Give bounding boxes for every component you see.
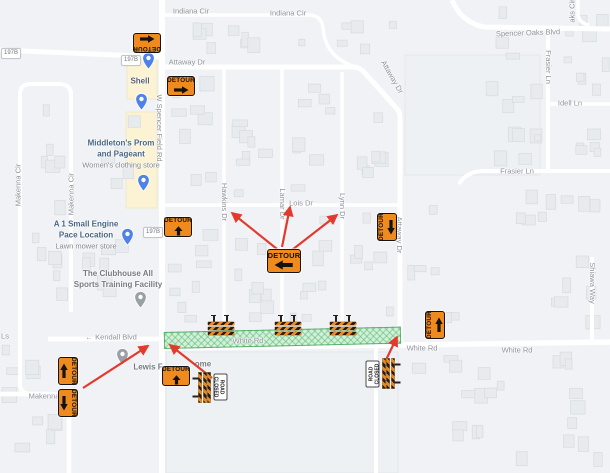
barricade-rail bbox=[330, 322, 356, 326]
barricade-rail bbox=[208, 372, 211, 402]
detour-sign-text: DETOUR bbox=[427, 311, 433, 339]
detour-sign[interactable]: DETOUR bbox=[377, 213, 397, 241]
detour-sign-text: DETOUR bbox=[162, 367, 190, 373]
detour-sign-text: DETOUR bbox=[69, 357, 75, 385]
detour-sign[interactable]: DETOUR bbox=[133, 33, 161, 53]
detour-sign-text: DETOUR bbox=[379, 213, 385, 241]
detour-sign[interactable]: DETOUR bbox=[425, 311, 445, 339]
detour-sign[interactable]: DETOUR bbox=[167, 76, 195, 96]
detour-sign-text: DETOUR bbox=[69, 389, 75, 417]
road-closed-sign: ROADCLOSED bbox=[366, 360, 380, 387]
arrow-right-icon bbox=[435, 317, 443, 333]
detour-sign-text: DETOUR bbox=[268, 252, 301, 260]
barricade-rail bbox=[208, 322, 234, 326]
barricade-rail bbox=[208, 332, 234, 336]
traffic-control-layer: ROADCLOSEDROADCLOSEDDETOURDETOURDETOURDE… bbox=[0, 0, 610, 473]
road-closed-line2: CLOSED bbox=[213, 374, 219, 399]
road-closed-line1: ROAD bbox=[219, 374, 225, 399]
barricade-rail bbox=[203, 372, 206, 402]
detour-sign[interactable]: DETOUR bbox=[162, 366, 190, 386]
detour-sign[interactable]: DETOUR bbox=[267, 249, 301, 273]
arrow-left-icon bbox=[139, 35, 155, 43]
arrow-up-icon bbox=[172, 375, 181, 385]
detour-sign[interactable]: DETOUR bbox=[58, 389, 78, 417]
barricade-rail bbox=[387, 358, 390, 388]
detour-sign[interactable]: DETOUR bbox=[164, 217, 192, 237]
road-closed-line2: CLOSED bbox=[374, 361, 380, 386]
barricade-rail bbox=[275, 327, 301, 331]
type3-barricade[interactable] bbox=[330, 316, 356, 335]
type3-barricade[interactable] bbox=[275, 316, 301, 335]
barricade-post bbox=[193, 377, 200, 379]
arrow-left-icon bbox=[60, 363, 68, 379]
barricade-rail bbox=[391, 358, 394, 388]
type3-barricade[interactable] bbox=[208, 316, 234, 335]
arrow-right-icon bbox=[173, 86, 189, 94]
arrow-right-icon bbox=[60, 395, 68, 411]
road-closed-barricade[interactable]: ROADCLOSED bbox=[366, 358, 401, 388]
arrow-up-icon bbox=[174, 226, 183, 236]
barricade-rail bbox=[330, 327, 356, 331]
arrow-left-icon bbox=[274, 260, 294, 270]
arrow-left-icon bbox=[387, 219, 395, 235]
map-canvas[interactable]: Indiana CirIndiana CirAttaway DrAttaway … bbox=[0, 0, 610, 473]
barricade-rail bbox=[208, 327, 234, 331]
road-closed-sign: ROADCLOSED bbox=[214, 373, 228, 400]
detour-sign[interactable]: DETOUR bbox=[58, 357, 78, 385]
barricade-post bbox=[193, 395, 200, 397]
barricade-rail bbox=[382, 358, 385, 388]
barricade-rail bbox=[330, 332, 356, 336]
barricade-rail bbox=[275, 322, 301, 326]
detour-sign-text: DETOUR bbox=[164, 218, 192, 224]
barricade-rail bbox=[275, 332, 301, 336]
barricade-rail bbox=[199, 372, 202, 402]
detour-sign-text: DETOUR bbox=[167, 78, 195, 84]
road-closed-barricade[interactable]: ROADCLOSED bbox=[193, 372, 228, 402]
detour-sign-text: DETOUR bbox=[133, 44, 161, 50]
barricade-post bbox=[394, 364, 401, 366]
barricade-post bbox=[394, 382, 401, 384]
